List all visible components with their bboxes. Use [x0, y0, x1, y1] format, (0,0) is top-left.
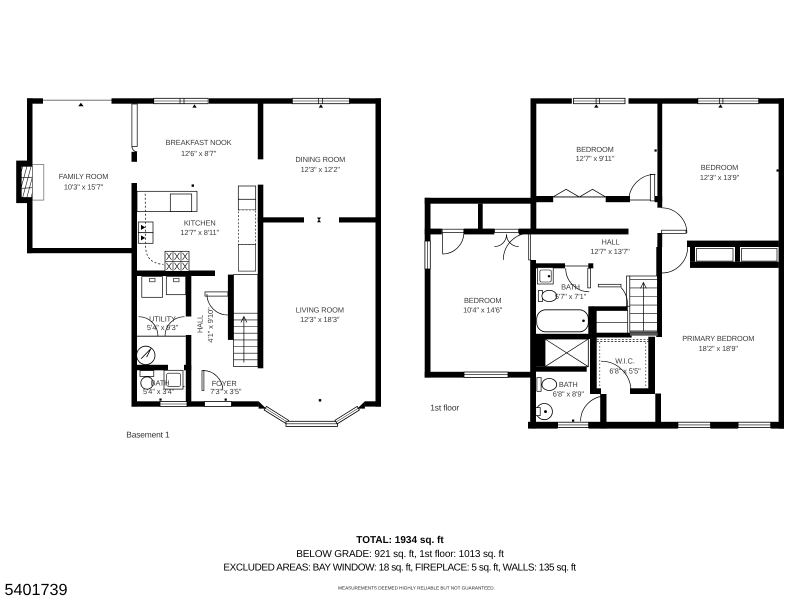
svg-text:18'2" x 18'9": 18'2" x 18'9" [699, 344, 739, 353]
svg-text:5401739: 5401739 [5, 581, 68, 599]
svg-text:10'3" x 15'7": 10'3" x 15'7" [64, 182, 104, 191]
svg-text:FAMILY ROOM: FAMILY ROOM [59, 172, 109, 181]
svg-text:5'7" x 7'1": 5'7" x 7'1" [555, 292, 587, 301]
svg-text:12'3" x 18'3": 12'3" x 18'3" [300, 315, 340, 324]
svg-text:4'1" x 9'10": 4'1" x 9'10" [206, 307, 215, 343]
svg-text:12'7" x 9'11": 12'7" x 9'11" [576, 154, 615, 163]
svg-text:BELOW GRADE: 921 sq. ft, 1st f: BELOW GRADE: 921 sq. ft, 1st floor: 1013… [296, 549, 504, 560]
svg-text:KITCHEN: KITCHEN [184, 219, 216, 228]
svg-text:BEDROOM: BEDROOM [701, 163, 739, 172]
svg-text:BATH: BATH [561, 283, 580, 292]
svg-text:DINING ROOM: DINING ROOM [295, 155, 345, 164]
svg-text:5'4" x 3'4": 5'4" x 3'4" [143, 387, 175, 396]
svg-text:MEASUREMENTS DEEMED HIGHLY REL: MEASUREMENTS DEEMED HIGHLY RELIABLE BUT … [338, 586, 495, 591]
svg-text:BEDROOM: BEDROOM [576, 145, 614, 154]
svg-text:12'3" x 13'9": 12'3" x 13'9" [700, 173, 740, 182]
svg-text:LIVING ROOM: LIVING ROOM [296, 306, 344, 315]
svg-text:W.I.C.: W.I.C. [615, 357, 635, 366]
svg-text:1st floor: 1st floor [430, 403, 459, 413]
svg-text:12'3" x 12'2": 12'3" x 12'2" [301, 165, 341, 174]
svg-text:12'7" x 8'11": 12'7" x 8'11" [180, 228, 219, 237]
svg-text:12'6" x 8'7": 12'6" x 8'7" [181, 149, 217, 158]
svg-text:PRIMARY BEDROOM: PRIMARY BEDROOM [682, 334, 754, 343]
svg-text:6'8" x 5'5": 6'8" x 5'5" [609, 367, 641, 376]
svg-text:EXCLUDED AREAS: BAY WINDOW: 18: EXCLUDED AREAS: BAY WINDOW: 18 sq. ft, F… [223, 562, 576, 573]
svg-text:HALL: HALL [195, 315, 204, 333]
svg-text:10'4" x 14'6": 10'4" x 14'6" [463, 306, 503, 315]
svg-text:BATH: BATH [559, 380, 578, 389]
svg-text:7'3" x 3'5": 7'3" x 3'5" [210, 387, 242, 396]
svg-text:HALL: HALL [601, 237, 619, 246]
svg-text:BREAKFAST NOOK: BREAKFAST NOOK [166, 138, 232, 147]
svg-text:Basement 1: Basement 1 [126, 429, 170, 439]
svg-text:6'8" x 8'9": 6'8" x 8'9" [553, 390, 585, 399]
svg-text:12'7" x 13'7": 12'7" x 13'7" [590, 247, 630, 256]
svg-text:5'4" x 9'3": 5'4" x 9'3" [147, 323, 179, 332]
svg-text:BEDROOM: BEDROOM [464, 296, 502, 305]
svg-text:TOTAL: 1934 sq. ft: TOTAL: 1934 sq. ft [356, 535, 444, 546]
